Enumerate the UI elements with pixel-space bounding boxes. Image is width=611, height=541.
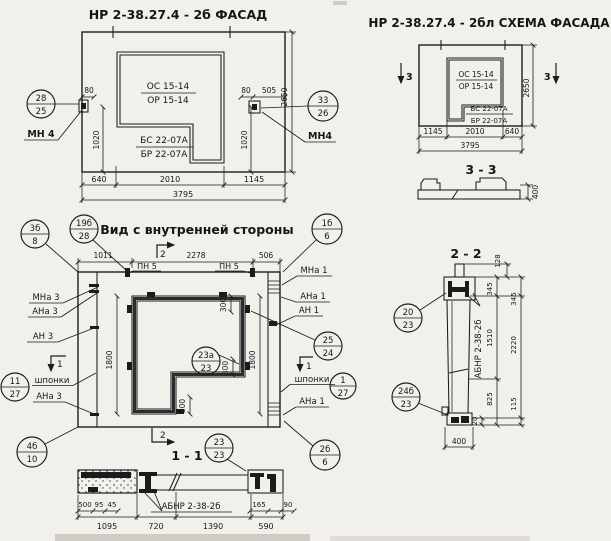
dim-text: 500 [78, 501, 91, 509]
callout-bottom: 23 [401, 400, 412, 410]
rebar-label: АНа 1 [300, 292, 326, 302]
dim-text: 95 [95, 501, 104, 509]
callout-top: 25 [323, 336, 334, 346]
ibeam-web [145, 476, 151, 489]
section-3-3: 3 - 3 400 [418, 162, 540, 199]
callout-bottom: 23 [214, 451, 225, 461]
steel-part [88, 487, 98, 492]
dim-text: 400 [452, 437, 467, 446]
dim-text: 2220 [510, 336, 518, 354]
rebar-label: АНа 1 [299, 397, 325, 407]
callout-top: 3б [30, 224, 41, 234]
break-line [452, 190, 458, 199]
ibeam-web [452, 287, 465, 292]
callout-bottom: 23 [201, 364, 212, 374]
key-mark [269, 321, 277, 326]
section-mark-label: 1 [306, 362, 312, 372]
opening-wall-band [135, 299, 243, 412]
dim-text: 80 [84, 86, 94, 95]
section-title: 1 - 1 [171, 448, 202, 463]
opening-label: ОС 15-14 [147, 82, 190, 92]
dim-text: 506 [259, 251, 274, 260]
facade-opening-outer [117, 52, 224, 163]
block-label: БР 22-07А [471, 117, 508, 125]
callout-top: 1 [340, 376, 345, 386]
section-1-1: 1 - 1 АБНР 2-38-2б 500 95 45 165 90 [78, 448, 294, 531]
ibeam-flange [465, 281, 469, 297]
anchor-mark [219, 292, 227, 297]
callout-bottom: 25 [36, 107, 47, 117]
dim-text: 165 [252, 501, 265, 509]
section-2-2: 2 - 2 АБНР 2-38-2б 20 23 24б 23 [392, 246, 525, 450]
channel-beam [81, 472, 131, 478]
rebar-label: АНа 3 [36, 392, 62, 402]
dim-text: 300 [221, 361, 230, 376]
callout-bottom: 26 [318, 109, 329, 119]
dim-text: 2278 [186, 251, 205, 260]
dim-text: 640 [505, 127, 520, 136]
dim-text: 1145 [244, 175, 264, 184]
anchor-plate-core [81, 103, 86, 109]
callout-top: 23 [214, 438, 225, 448]
callout-top: 24б [398, 387, 414, 397]
section-profile-base [418, 190, 520, 199]
scan-smudge [333, 1, 347, 5]
schema-view: НР 2-38.27.4 - 2бл СХЕМА ФАСАДА ОС 15-14… [368, 16, 610, 154]
break-line [173, 473, 181, 491]
facade-title: НР 2-38.27.4 - 2б ФАСАД [89, 7, 268, 22]
dim-text: 1020 [240, 130, 249, 149]
dim-text: 1095 [97, 522, 117, 531]
opening-outer [132, 296, 245, 414]
rebar-label: МНа 3 [32, 293, 59, 303]
dim-text: 45 [108, 501, 117, 509]
section-mark-label: 3 [406, 72, 413, 83]
dim-text: 1510 [486, 329, 494, 347]
callout-top: 11 [10, 377, 21, 387]
steel-part [461, 416, 469, 423]
rebar-label: АН 1 [299, 306, 319, 316]
dim-text: 1800 [248, 350, 257, 369]
dim-text: 90 [284, 501, 293, 509]
anchor-mark [245, 305, 250, 313]
dim-text: 505 [262, 86, 277, 95]
pn5-label: ПН 5 [137, 262, 157, 271]
section-mark-label: 2 [160, 250, 166, 260]
callout-bottom: 27 [10, 390, 21, 400]
dim-text: 2010 [465, 127, 484, 136]
callout-top: 23а [198, 351, 214, 361]
dim-text: 1020 [92, 130, 101, 149]
section-title: 3 - 3 [465, 162, 496, 177]
callout-bottom: 6 [324, 232, 329, 242]
opening-inner [137, 301, 240, 409]
dim-text: 300 [178, 399, 187, 414]
dim-text: 1390 [203, 522, 223, 531]
anchor-mark [147, 292, 155, 297]
rebar-label: МНа 1 [300, 266, 327, 276]
drawing-canvas: НР 2-38.27.4 - 2б ФАСАД ОС 15-14 ОР 15-1… [0, 0, 611, 541]
dim-text: 115 [510, 397, 518, 410]
callout-bottom: 28 [79, 232, 90, 242]
dim-text: 2650 [280, 87, 289, 106]
section-profile-bump [476, 178, 506, 190]
callout-bottom: 10 [27, 455, 38, 465]
callout-bottom: 24 [323, 349, 334, 359]
dim-text: 640 [91, 175, 106, 184]
anchor-plate-core [252, 104, 257, 110]
block-label: БС 22-07А [140, 136, 188, 146]
anchor-label: МН4 [308, 131, 332, 142]
rebar-label: АН 3 [33, 332, 53, 342]
anchor-mark [89, 284, 99, 287]
dim-text: 300 [219, 298, 228, 313]
callout-top: 33 [318, 96, 329, 106]
steel-part [451, 417, 459, 423]
callout-top: 19б [76, 219, 92, 229]
tbeam-web [255, 477, 260, 489]
anchor-label: МН 4 [27, 129, 55, 140]
rebar-label: АНа 3 [32, 307, 58, 317]
dim-text: 720 [148, 522, 163, 531]
callout-bottom: 8 [32, 237, 37, 247]
dim-text: 2010 [160, 175, 180, 184]
bar-serif [267, 474, 271, 479]
top-protrusion [455, 264, 464, 277]
callout-top: 28 [36, 94, 47, 104]
anchor-mark [127, 362, 132, 370]
section-profile-bump [421, 179, 440, 190]
pn5-label: ПН 5 [219, 262, 239, 271]
ibeam-flange [139, 472, 157, 476]
section-mark-label: 1 [57, 360, 63, 370]
callout-bottom: 6 [322, 458, 327, 468]
opening-label: ОР 15-14 [459, 82, 494, 91]
tbeam-flange [250, 473, 264, 477]
block-label: БС 22-07А [470, 105, 507, 113]
section-mark-label: 3 [544, 72, 551, 83]
product-label: АБНР 2-38-2б [474, 320, 484, 379]
callout-top: 4б [27, 442, 38, 452]
dim-text: 590 [258, 522, 273, 531]
dim-text: 345 [486, 282, 494, 295]
dim-text: 1145 [423, 127, 442, 136]
panel-stem [447, 300, 470, 413]
inner-view: Вид с внутренней стороны [1, 214, 356, 471]
anchor-mark [127, 305, 132, 313]
dim-text: 825 [486, 392, 494, 405]
opening-label: ОС 15-14 [458, 70, 494, 79]
block-label: БР 22-07А [141, 150, 189, 160]
product-label: АБНР 2-38-2б [162, 502, 221, 512]
section-mark-label: 2 [160, 431, 166, 441]
dim-text: 1800 [105, 350, 114, 369]
anchor-mark [90, 413, 99, 416]
dim-text: 20 [471, 417, 479, 426]
callout-top: 20 [403, 308, 414, 318]
dim-text: 3795 [173, 190, 193, 199]
rib-hatch-top [268, 281, 280, 293]
section-title: 2 - 2 [450, 246, 481, 261]
dim-text: 400 [531, 185, 540, 200]
callout-top: 1б [322, 219, 333, 229]
keys-label: шпонки [295, 375, 330, 385]
callout-bottom: 27 [338, 389, 349, 399]
pn5-mark [250, 268, 255, 277]
dim-text: 128 [494, 254, 502, 267]
scan-smudge [330, 536, 530, 541]
callout-bottom: 23 [403, 321, 414, 331]
dim-text: 80 [241, 86, 251, 95]
rib-hatch-bottom [268, 403, 280, 415]
dim-text: 345 [510, 292, 518, 305]
dim-text: 3795 [460, 141, 479, 150]
dim-text: 2650 [522, 78, 531, 97]
callout-top: 2б [320, 445, 331, 455]
anchor-mark [90, 326, 99, 329]
schema-title: НР 2-38.27.4 - 2бл СХЕМА ФАСАДА [368, 16, 610, 30]
break-line [169, 473, 177, 491]
facade-view: НР 2-38.27.4 - 2б ФАСАД ОС 15-14 ОР 15-1… [24, 7, 338, 203]
opening-label: ОР 15-14 [147, 96, 189, 106]
blueprint-sheet: НР 2-38.27.4 - 2б ФАСАД ОС 15-14 ОР 15-1… [0, 0, 611, 541]
scan-smudge [55, 534, 310, 541]
inner-title: Вид с внутренней стороны [100, 222, 293, 237]
keys-label: шпонки [35, 376, 70, 386]
ibeam-flange [448, 281, 452, 297]
